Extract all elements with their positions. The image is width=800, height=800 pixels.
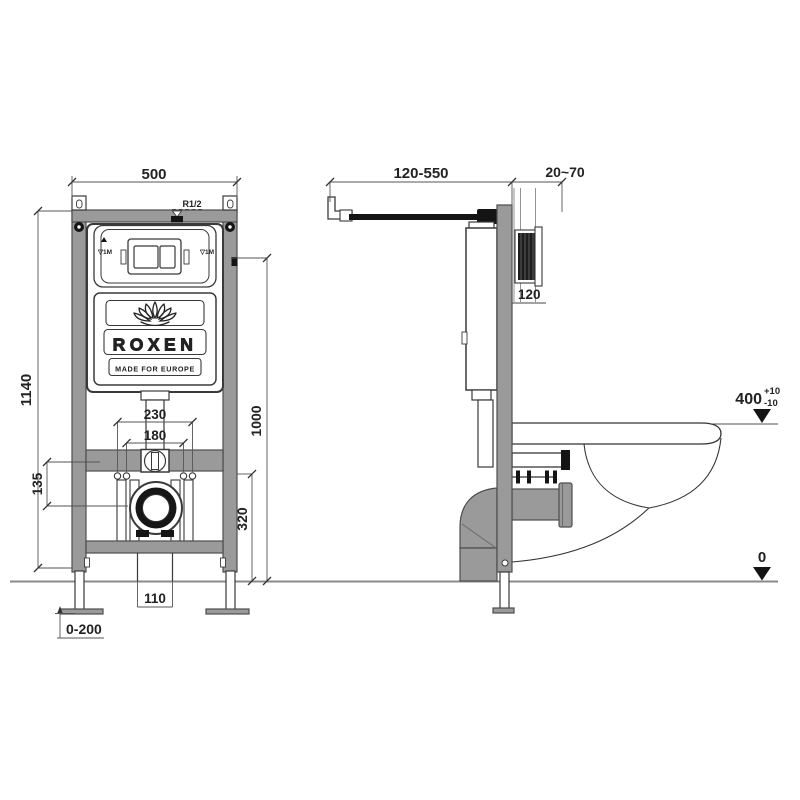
waste-pipe-side (512, 483, 572, 527)
mounting-holes (114, 473, 195, 479)
dim-outlet-width: 110 (144, 591, 166, 606)
dim-foot-adjust: 0-200 (66, 621, 102, 637)
dim-width: 500 (141, 166, 166, 183)
dim-holes-outer: 230 (144, 407, 167, 422)
drain-elbow (460, 488, 497, 581)
side-view: 120 (328, 188, 780, 613)
wall-support-arm (328, 197, 498, 224)
dim-height: 1140 (18, 374, 35, 407)
shaft-depth-label: 120 (518, 287, 541, 302)
brand-name: ROXEN (113, 335, 198, 355)
mid-crossbar (86, 450, 223, 473)
brand-panel: ROXEN MADE FOR EUROPE (94, 293, 216, 385)
dim-arm-range: 120-550 (393, 165, 448, 182)
dim-plate-height: 1000 (248, 405, 264, 436)
floor-level-marker (753, 567, 771, 581)
flush-plate (128, 239, 181, 274)
lower-crossbar (86, 541, 223, 553)
dim-outlet-height: 320 (234, 507, 250, 531)
bowl-height-tol-plus: +10 (764, 386, 780, 397)
dim-wall-thickness: 20~70 (545, 164, 585, 180)
installation-frame-drawing: R1/2 ▽1M ▽1M (0, 0, 800, 800)
inlet-label: R1/2 (182, 199, 201, 209)
technical-drawing-page: R1/2 ▽1M ▽1M (0, 0, 800, 800)
level-mark-left: ▽1M (97, 249, 112, 256)
dim-offset: 135 (30, 472, 45, 495)
front-view: R1/2 ▽1M ▽1M (60, 196, 249, 614)
bowl-height-label: 400 (735, 391, 762, 408)
bowl-height-tol-minus: -10 (764, 398, 778, 409)
floor-level-label: 0 (758, 549, 766, 566)
outlet-pipe (138, 553, 173, 581)
brand-tagline: MADE FOR EUROPE (115, 365, 195, 374)
flush-shaft (515, 227, 542, 286)
bowl-height-marker (753, 409, 771, 423)
level-mark-right: ▽1M (199, 249, 214, 256)
dim-holes-inner: 180 (144, 428, 167, 443)
cistern-side (462, 222, 497, 467)
bowl-connectors (512, 450, 570, 484)
